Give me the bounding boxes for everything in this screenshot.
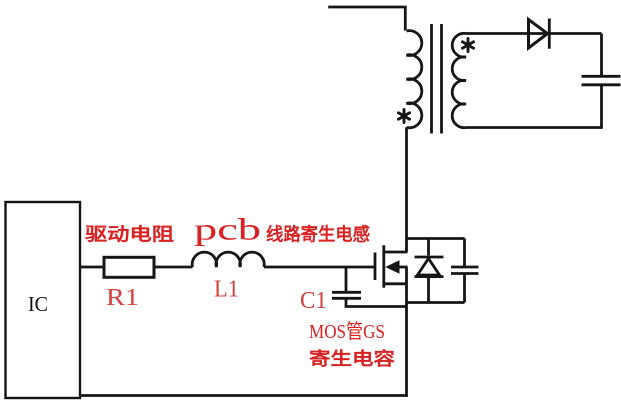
svg-text:寄生电容: 寄生电容 — [309, 348, 395, 369]
svg-text:pcb: pcb — [194, 212, 261, 247]
svg-text:线路寄生电感: 线路寄生电感 — [266, 224, 370, 245]
svg-text:C1: C1 — [300, 288, 327, 314]
svg-text:R1: R1 — [106, 285, 139, 311]
svg-text:MOS管GS: MOS管GS — [309, 320, 385, 343]
svg-text:驱动电阻: 驱动电阻 — [85, 224, 174, 245]
svg-text:L1: L1 — [214, 277, 239, 303]
svg-text:IC: IC — [28, 292, 48, 316]
